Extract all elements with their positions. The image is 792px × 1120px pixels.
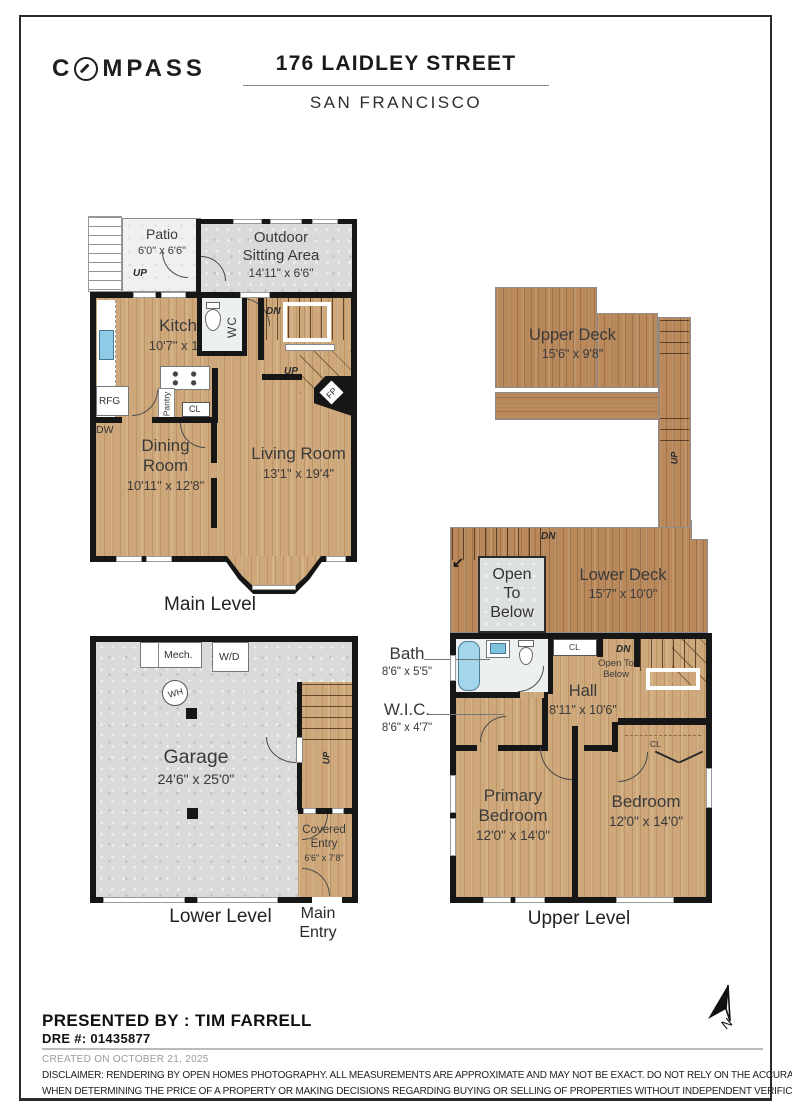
pantry-closet: Pantry	[158, 388, 175, 419]
up-label-deck-stairs: UP	[660, 446, 689, 470]
upper-deck-landing	[495, 392, 662, 420]
wc-label: WC	[222, 304, 242, 350]
window	[312, 219, 338, 224]
bathtub	[458, 641, 480, 691]
bedroom-closet-label: CL	[650, 739, 661, 749]
structural-post	[187, 808, 198, 819]
toilet-icon-upper	[518, 640, 534, 647]
footer-divider	[42, 1048, 763, 1050]
dishwasher-label: DW	[96, 424, 114, 436]
stair-railing	[283, 302, 331, 342]
room-upper-deck: Upper Deck 15'6" x 9'8"	[500, 326, 645, 361]
deck-stairs-upper-run	[660, 320, 689, 354]
wall	[90, 417, 122, 423]
wall	[297, 763, 302, 810]
wall	[212, 368, 218, 420]
room-living: Living Room 13'1" x 19'4"	[246, 444, 351, 481]
deck-stairs-lower-run	[660, 418, 689, 444]
door-leaf	[296, 737, 303, 763]
page-title: 176 LAIDLEY STREET	[243, 52, 549, 86]
window	[332, 808, 344, 814]
room-wic: W.I.C. 8'6" x 4'7"	[370, 700, 444, 734]
presented-by: PRESENTED BY : TIM FARRELL	[42, 1011, 312, 1031]
window	[450, 655, 456, 681]
closet-label: CL	[189, 404, 201, 414]
mech-label: Mech.	[164, 649, 193, 661]
window	[146, 556, 172, 562]
range-stove	[160, 366, 210, 390]
bay-window-glass	[252, 585, 296, 590]
wall	[618, 718, 706, 725]
exterior-stairs-main	[88, 216, 122, 292]
refrigerator-label: RFG	[99, 396, 120, 407]
open-to-below-arrow-icon: ↙	[452, 554, 464, 571]
toilet-icon	[206, 302, 220, 309]
wall	[498, 745, 544, 751]
room-outdoor-sitting-area: Outdoor Sitting Area 14'11" x 6'6"	[231, 229, 331, 280]
floor-plan-page: C MPASS 176 LAIDLEY STREET SAN FRANCISCO…	[0, 0, 792, 1120]
compass-logo-letter-c: C	[52, 55, 73, 83]
page-subtitle: SAN FRANCISCO	[243, 93, 549, 113]
open-to-below-upper: Open To Below	[478, 556, 546, 633]
dn-label-main-stairs: DN	[266, 306, 280, 317]
wall	[297, 682, 302, 737]
main-entry-opening	[312, 897, 342, 903]
dre-number: DRE #: 01435877	[42, 1031, 151, 1046]
wall	[258, 298, 264, 360]
hall-closet-label: CL	[569, 642, 580, 652]
garage-door	[197, 897, 278, 903]
level-label-main: Main Level	[150, 594, 270, 616]
level-label-upper: Upper Level	[514, 908, 644, 930]
dn-label-lower-deck: DN	[541, 531, 555, 542]
upper-stair-railing	[646, 668, 700, 690]
deck-corner-notch	[691, 520, 708, 540]
window	[233, 219, 262, 224]
stairs-lower-up	[302, 684, 352, 742]
bath-leader-line	[424, 659, 490, 660]
compass-logo: C MPASS	[52, 55, 206, 83]
garage-door-post	[186, 897, 196, 903]
window	[133, 292, 156, 298]
window	[161, 292, 186, 298]
window	[450, 775, 456, 813]
room-primary-bedroom: Primary Bedroom 12'0" x 14'0"	[453, 786, 573, 843]
wall	[612, 722, 618, 752]
dn-label-upper-stairs: DN	[616, 644, 630, 655]
wall	[455, 745, 477, 751]
mech-closet-divider	[158, 642, 159, 668]
up-label-patio: UP	[133, 268, 147, 279]
window	[116, 556, 142, 562]
room-bath: Bath 8'6" x 5'5"	[374, 644, 440, 678]
room-bedroom: Bedroom 12'0" x 14'0"	[586, 792, 706, 829]
wic-leader-line	[428, 714, 504, 715]
window	[706, 768, 712, 808]
window	[483, 897, 511, 903]
main-entry-label: Main Entry	[286, 905, 350, 943]
room-lower-deck: Lower Deck 15'7" x 10'0"	[553, 566, 693, 601]
closet-rod-line	[625, 735, 701, 736]
window	[450, 818, 456, 856]
stair-landing	[285, 344, 335, 351]
open-to-below-small: Open To Below	[598, 658, 634, 680]
created-on: CREATED ON OCTOBER 21, 2025	[42, 1054, 209, 1065]
compass-logo-o-icon	[74, 57, 98, 81]
room-garage: Garage 24'6" x 25'0"	[136, 746, 256, 787]
room-hall: Hall 8'11" x 10'6"	[541, 682, 625, 717]
level-label-lower: Lower Level	[158, 906, 283, 928]
disclaimer-line-1: DISCLAIMER: RENDERING BY OPEN HOMES PHOT…	[42, 1070, 792, 1081]
wall	[262, 374, 302, 380]
wall	[597, 637, 603, 657]
window	[326, 556, 346, 562]
wall	[542, 698, 548, 751]
water-heater: WH	[162, 680, 188, 706]
room-covered-entry: Covered Entry 6'6" x 7'8"	[294, 824, 354, 863]
garage-door	[103, 897, 185, 903]
window	[270, 219, 302, 224]
window	[515, 897, 545, 903]
room-dining: Dining Room 10'11" x 12'8"	[118, 436, 213, 493]
bath-sink-basin	[490, 643, 506, 654]
washer-dryer-label: W/D	[219, 651, 239, 663]
kitchen-sink	[99, 330, 114, 360]
window	[616, 897, 674, 903]
up-label-lower-stairs: UP	[306, 744, 346, 772]
structural-post	[186, 708, 197, 719]
disclaimer-line-2: WHEN DETERMINING THE PRICE OF A PROPERTY…	[42, 1086, 792, 1097]
compass-logo-letters: MPASS	[102, 55, 206, 83]
